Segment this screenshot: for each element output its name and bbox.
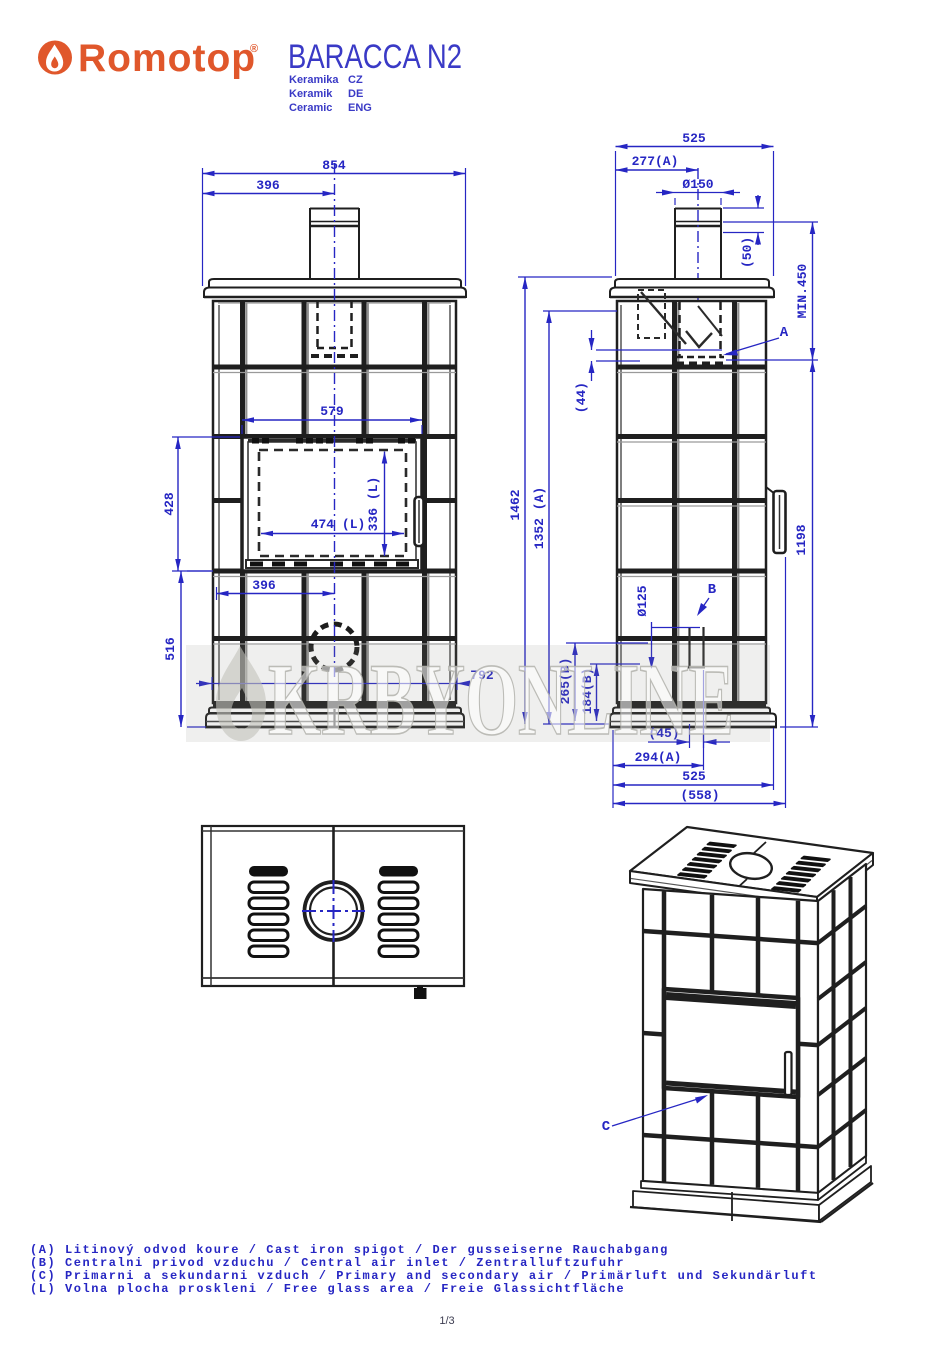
svg-text:396: 396 xyxy=(256,178,280,193)
svg-text:525: 525 xyxy=(682,769,706,784)
svg-text:1462: 1462 xyxy=(508,489,523,520)
svg-text:BARACCA N2: BARACCA N2 xyxy=(288,38,462,76)
svg-text:1198: 1198 xyxy=(794,524,809,555)
svg-text:A: A xyxy=(780,325,789,341)
svg-text:B: B xyxy=(708,582,717,598)
svg-text:Ø150: Ø150 xyxy=(682,177,713,192)
svg-text:(C) Primarni a sekundarni vzd: (C) Primarni a sekundarni vzduch / Prima… xyxy=(30,1269,818,1283)
svg-text:(L) Volna plocha proskleni /: (L) Volna plocha proskleni / Free glass … xyxy=(30,1282,625,1296)
svg-text:Ceramic: Ceramic xyxy=(289,102,332,114)
svg-text:MIN.450: MIN.450 xyxy=(795,263,810,318)
svg-text:®: ® xyxy=(250,43,258,55)
svg-text:516: 516 xyxy=(163,637,178,661)
svg-text:336 (L): 336 (L) xyxy=(366,477,381,532)
svg-text:474 (L): 474 (L) xyxy=(311,517,366,532)
svg-text:DE: DE xyxy=(348,88,363,100)
svg-text:1/3: 1/3 xyxy=(439,1315,454,1327)
svg-text:CZ: CZ xyxy=(348,74,363,86)
svg-text:Keramik: Keramik xyxy=(289,88,333,100)
svg-text:1352 (A): 1352 (A) xyxy=(532,487,547,549)
svg-text:396: 396 xyxy=(252,578,276,593)
svg-text:854: 854 xyxy=(322,158,346,173)
svg-text:Romotop: Romotop xyxy=(78,37,256,80)
svg-text:525: 525 xyxy=(682,131,706,146)
svg-text:277(A): 277(A) xyxy=(632,154,679,169)
svg-text:428: 428 xyxy=(162,492,177,516)
svg-text:KRBYONLINE: KRBYONLINE xyxy=(268,643,734,757)
svg-text:C: C xyxy=(602,1119,611,1135)
svg-text:(558): (558) xyxy=(680,788,719,803)
svg-text:(B) Centralni privod vzduchu: (B) Centralni privod vzduchu / Central a… xyxy=(30,1256,625,1270)
svg-text:(A) Litinový odvod koure / Ca: (A) Litinový odvod koure / Cast iron spi… xyxy=(30,1243,669,1257)
svg-text:(44): (44) xyxy=(574,382,589,413)
svg-text:Ø125: Ø125 xyxy=(635,585,650,616)
svg-text:ENG: ENG xyxy=(348,102,372,114)
svg-text:(50): (50) xyxy=(740,237,755,268)
svg-text:579: 579 xyxy=(320,404,344,419)
svg-text:Keramika: Keramika xyxy=(289,74,339,86)
